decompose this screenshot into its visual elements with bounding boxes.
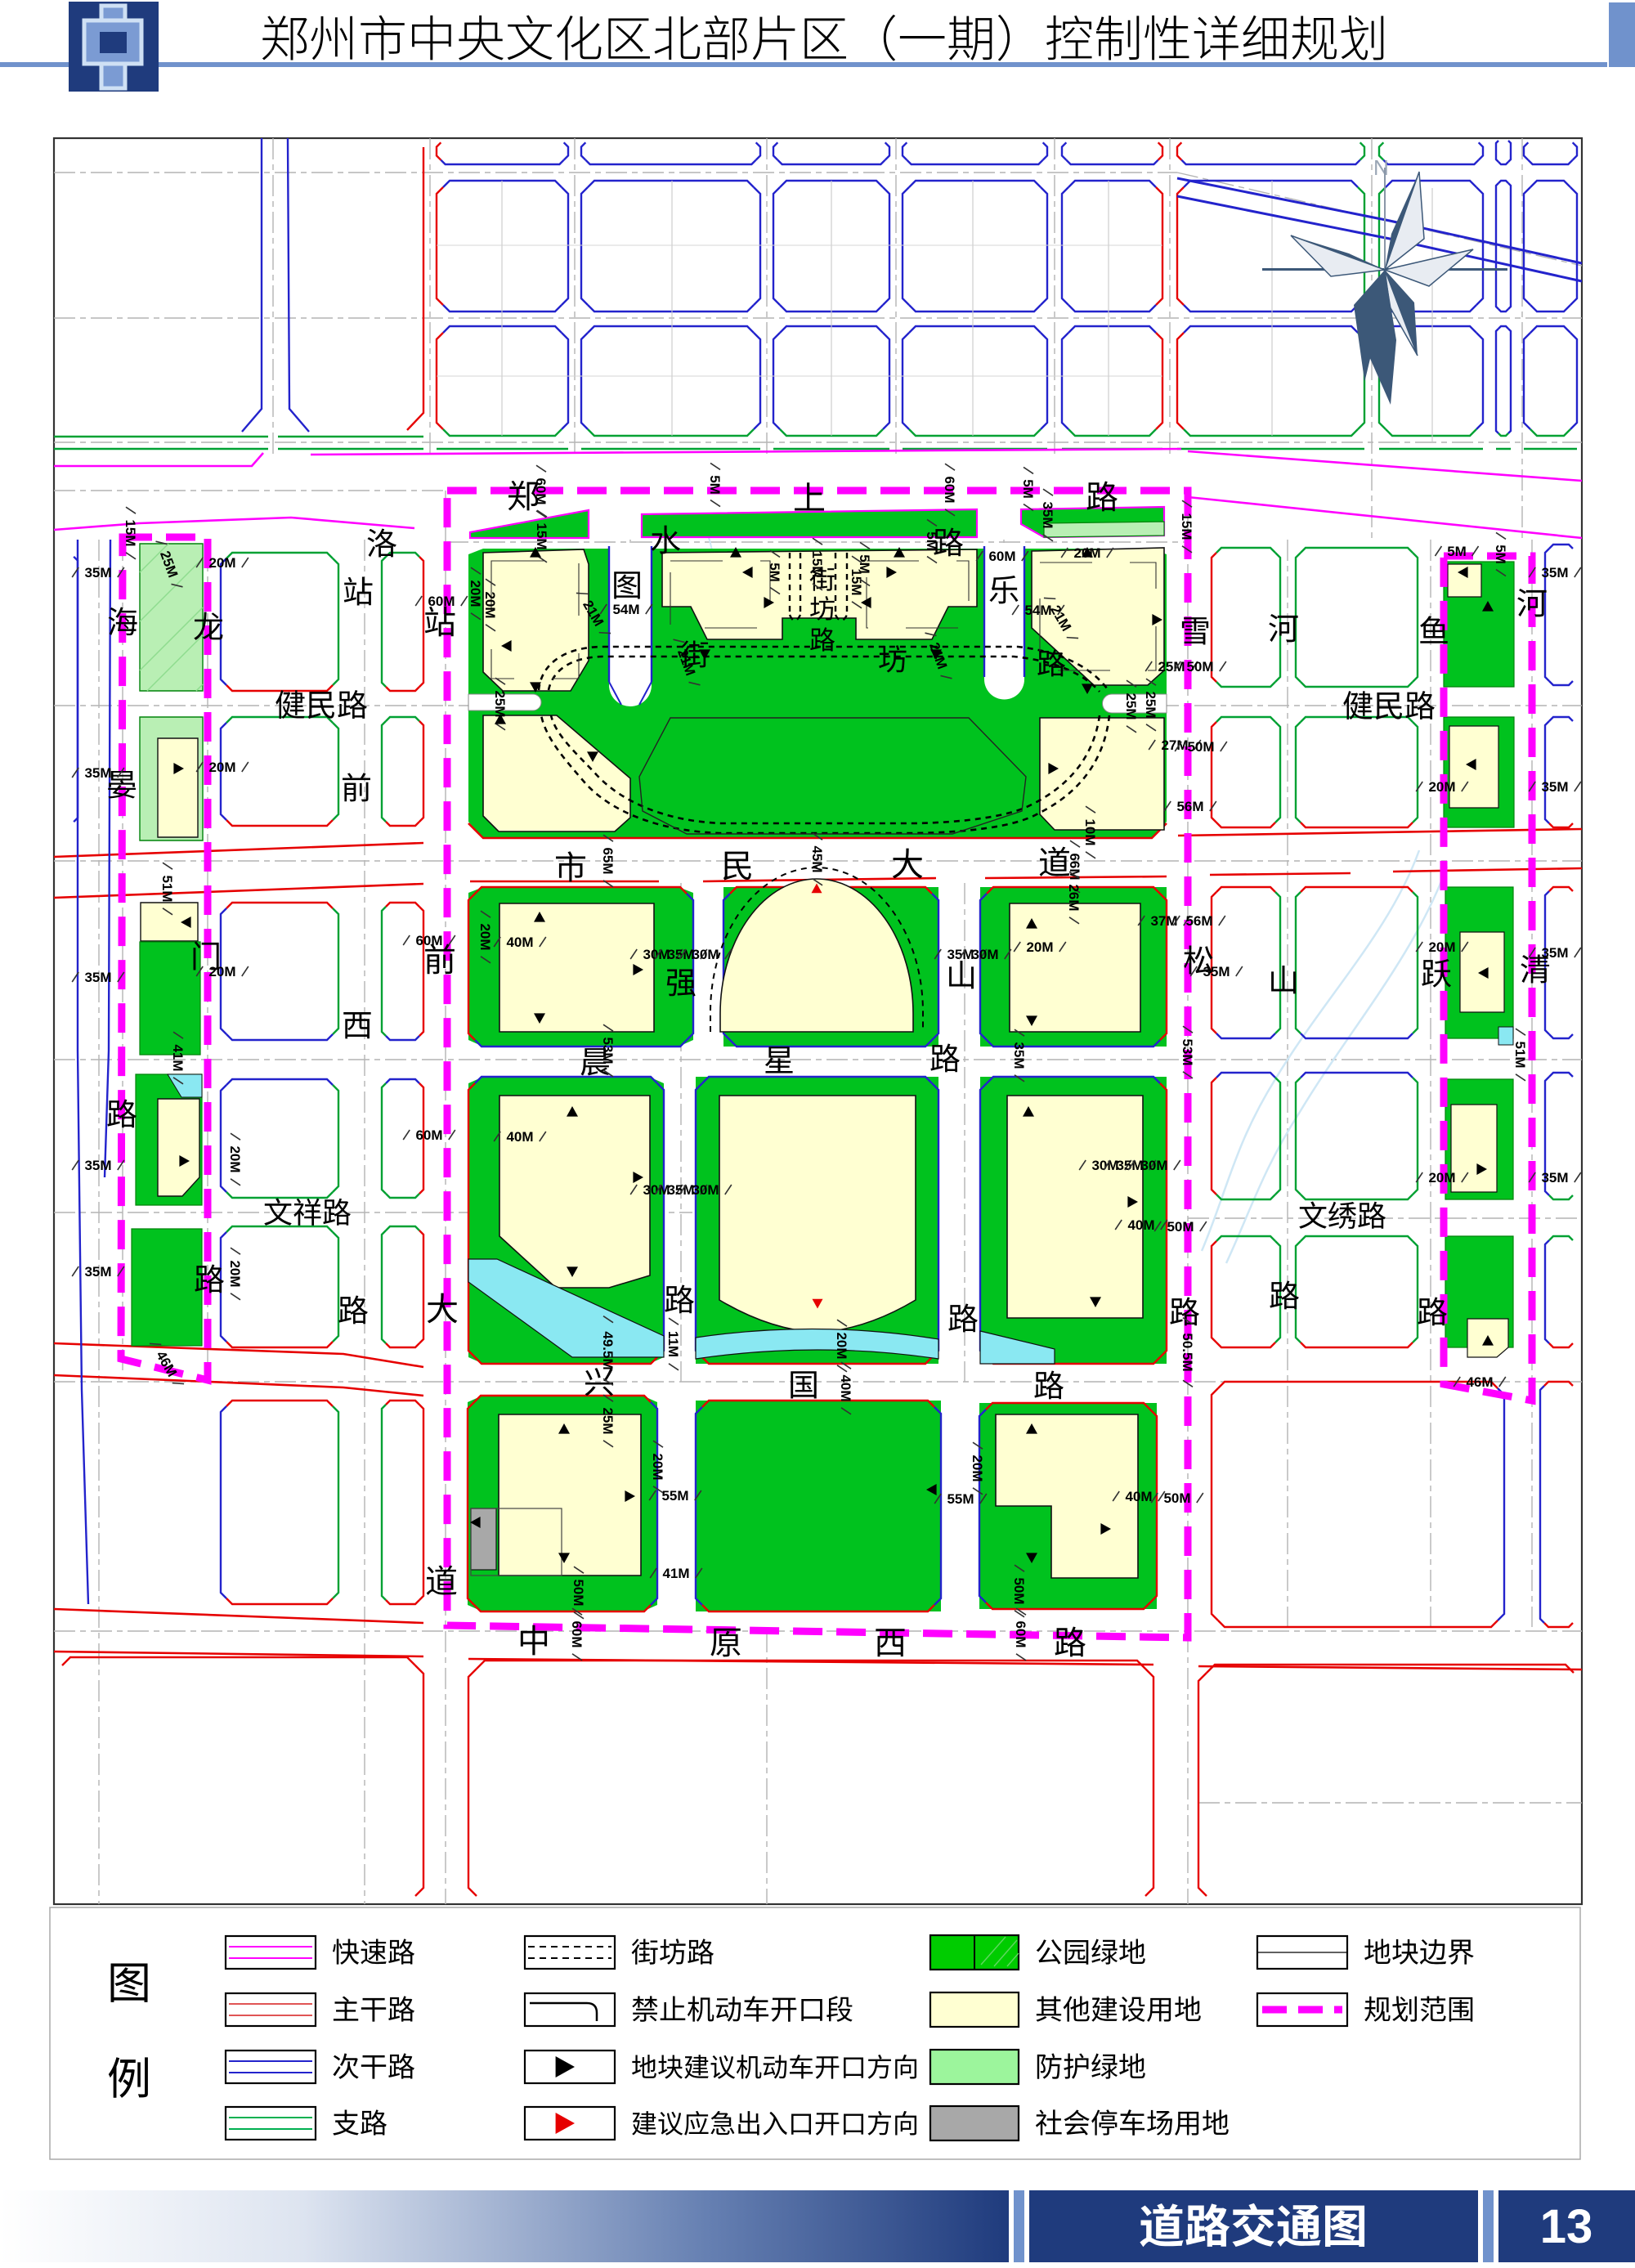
svg-text:20M: 20M (1428, 939, 1455, 955)
svg-text:30M: 30M (1140, 1158, 1167, 1173)
svg-text:50M: 50M (571, 1579, 586, 1606)
svg-text:56M: 56M (1185, 913, 1212, 929)
svg-text:40M: 40M (506, 935, 533, 950)
svg-text:20M: 20M (834, 1332, 849, 1359)
svg-text:35M: 35M (84, 565, 111, 580)
svg-text:20M: 20M (208, 555, 235, 571)
svg-text:35M: 35M (947, 947, 974, 962)
svg-text:25M: 25M (600, 1407, 616, 1434)
svg-text:35M: 35M (1541, 779, 1568, 795)
svg-text:30M: 30M (692, 1182, 719, 1198)
svg-text:25M: 25M (492, 690, 508, 717)
svg-text:35M: 35M (667, 1182, 694, 1198)
svg-text:40M: 40M (506, 1129, 533, 1145)
svg-text:5M: 5M (924, 531, 939, 551)
svg-text:5M: 5M (857, 554, 872, 574)
svg-text:35M: 35M (667, 947, 694, 962)
svg-text:13: 13 (1540, 2200, 1593, 2253)
svg-text:35M: 35M (84, 970, 111, 985)
svg-text:60M: 60M (415, 1127, 442, 1143)
svg-text:45M: 45M (809, 845, 825, 872)
svg-text:5M: 5M (1447, 544, 1467, 559)
svg-text:50M: 50M (1167, 1219, 1194, 1235)
svg-text:35M: 35M (1203, 964, 1230, 979)
svg-text:10M: 10M (1082, 818, 1098, 845)
svg-text:30M: 30M (643, 947, 670, 962)
svg-text:5M: 5M (1493, 545, 1508, 564)
svg-text:N: N (1373, 155, 1389, 180)
svg-text:60M: 60M (415, 933, 442, 948)
svg-text:53M: 53M (1180, 1038, 1195, 1065)
svg-text:35M: 35M (1116, 1158, 1143, 1173)
svg-text:35M: 35M (84, 1264, 111, 1280)
svg-text:55M: 55M (947, 1491, 974, 1507)
svg-text:53M: 53M (600, 1037, 616, 1064)
svg-text:15M: 15M (809, 550, 825, 577)
svg-text:15M: 15M (123, 519, 138, 546)
svg-text:60M: 60M (533, 477, 549, 504)
svg-text:40M: 40M (838, 1374, 853, 1401)
svg-text:20M: 20M (1026, 939, 1053, 955)
svg-text:50.5M: 50.5M (1180, 1333, 1195, 1371)
svg-text:35M: 35M (1011, 1042, 1027, 1069)
svg-text:20M: 20M (482, 591, 498, 618)
svg-text:40M: 40M (1127, 1217, 1154, 1233)
svg-text:15M: 15M (1179, 513, 1194, 540)
svg-text:49.5M: 49.5M (600, 1331, 616, 1369)
svg-text:65M: 65M (600, 847, 616, 874)
svg-text:15M: 15M (534, 522, 549, 549)
svg-text:20M: 20M (970, 1454, 985, 1481)
svg-text:50M: 50M (1163, 1490, 1190, 1506)
svg-text:5M: 5M (767, 563, 782, 582)
svg-text:66M: 66M (1067, 853, 1082, 880)
svg-text:35M: 35M (1541, 565, 1568, 580)
svg-text:41M: 41M (662, 1566, 689, 1581)
svg-text:20M: 20M (227, 1145, 243, 1172)
svg-text:11M: 11M (665, 1331, 681, 1357)
svg-text:51M: 51M (159, 875, 175, 902)
svg-text:30M: 30M (643, 1182, 670, 1198)
svg-text:46M: 46M (1466, 1374, 1493, 1390)
svg-text:35M: 35M (1541, 1170, 1568, 1186)
svg-text:60M: 60M (942, 476, 957, 503)
svg-text:60M: 60M (1013, 1620, 1028, 1647)
svg-text:20M: 20M (208, 964, 235, 979)
svg-text:50M: 50M (1011, 1577, 1027, 1604)
svg-text:60M: 60M (569, 1620, 585, 1647)
svg-text:54M: 54M (612, 602, 639, 617)
svg-text:55M: 55M (661, 1488, 688, 1504)
svg-text:35M: 35M (1541, 945, 1568, 961)
svg-text:20M: 20M (208, 760, 235, 775)
svg-text:25M: 25M (1123, 693, 1139, 719)
svg-text:40M: 40M (1125, 1489, 1152, 1504)
svg-text:20M: 20M (227, 1260, 243, 1287)
svg-text:30M: 30M (692, 947, 719, 962)
svg-text:20M: 20M (1428, 1170, 1455, 1186)
svg-text:20M: 20M (477, 923, 493, 950)
svg-text:30M: 30M (1091, 1158, 1118, 1173)
svg-text:30M: 30M (971, 947, 998, 962)
svg-text:26M: 26M (1066, 884, 1082, 911)
svg-text:60M: 60M (428, 594, 455, 609)
svg-text:20M: 20M (650, 1453, 665, 1480)
svg-text:35M: 35M (84, 765, 111, 781)
svg-text:41M: 41M (170, 1044, 186, 1071)
svg-text:37M: 37M (1150, 913, 1177, 929)
svg-text:50M: 50M (1187, 739, 1214, 755)
svg-text:20M: 20M (1428, 779, 1455, 795)
svg-text:5M: 5M (1020, 479, 1036, 499)
svg-text:35M: 35M (1040, 501, 1055, 528)
svg-text:35M: 35M (84, 1158, 111, 1173)
svg-text:51M: 51M (1512, 1041, 1528, 1068)
svg-text:5M: 5M (707, 475, 723, 495)
svg-text:25M: 25M (1143, 691, 1158, 718)
svg-text:25M: 25M (1158, 659, 1185, 675)
svg-text:60M: 60M (988, 549, 1015, 564)
svg-text:20M: 20M (468, 580, 483, 607)
svg-text:50M: 50M (1186, 659, 1213, 675)
svg-text:56M: 56M (1176, 799, 1203, 814)
